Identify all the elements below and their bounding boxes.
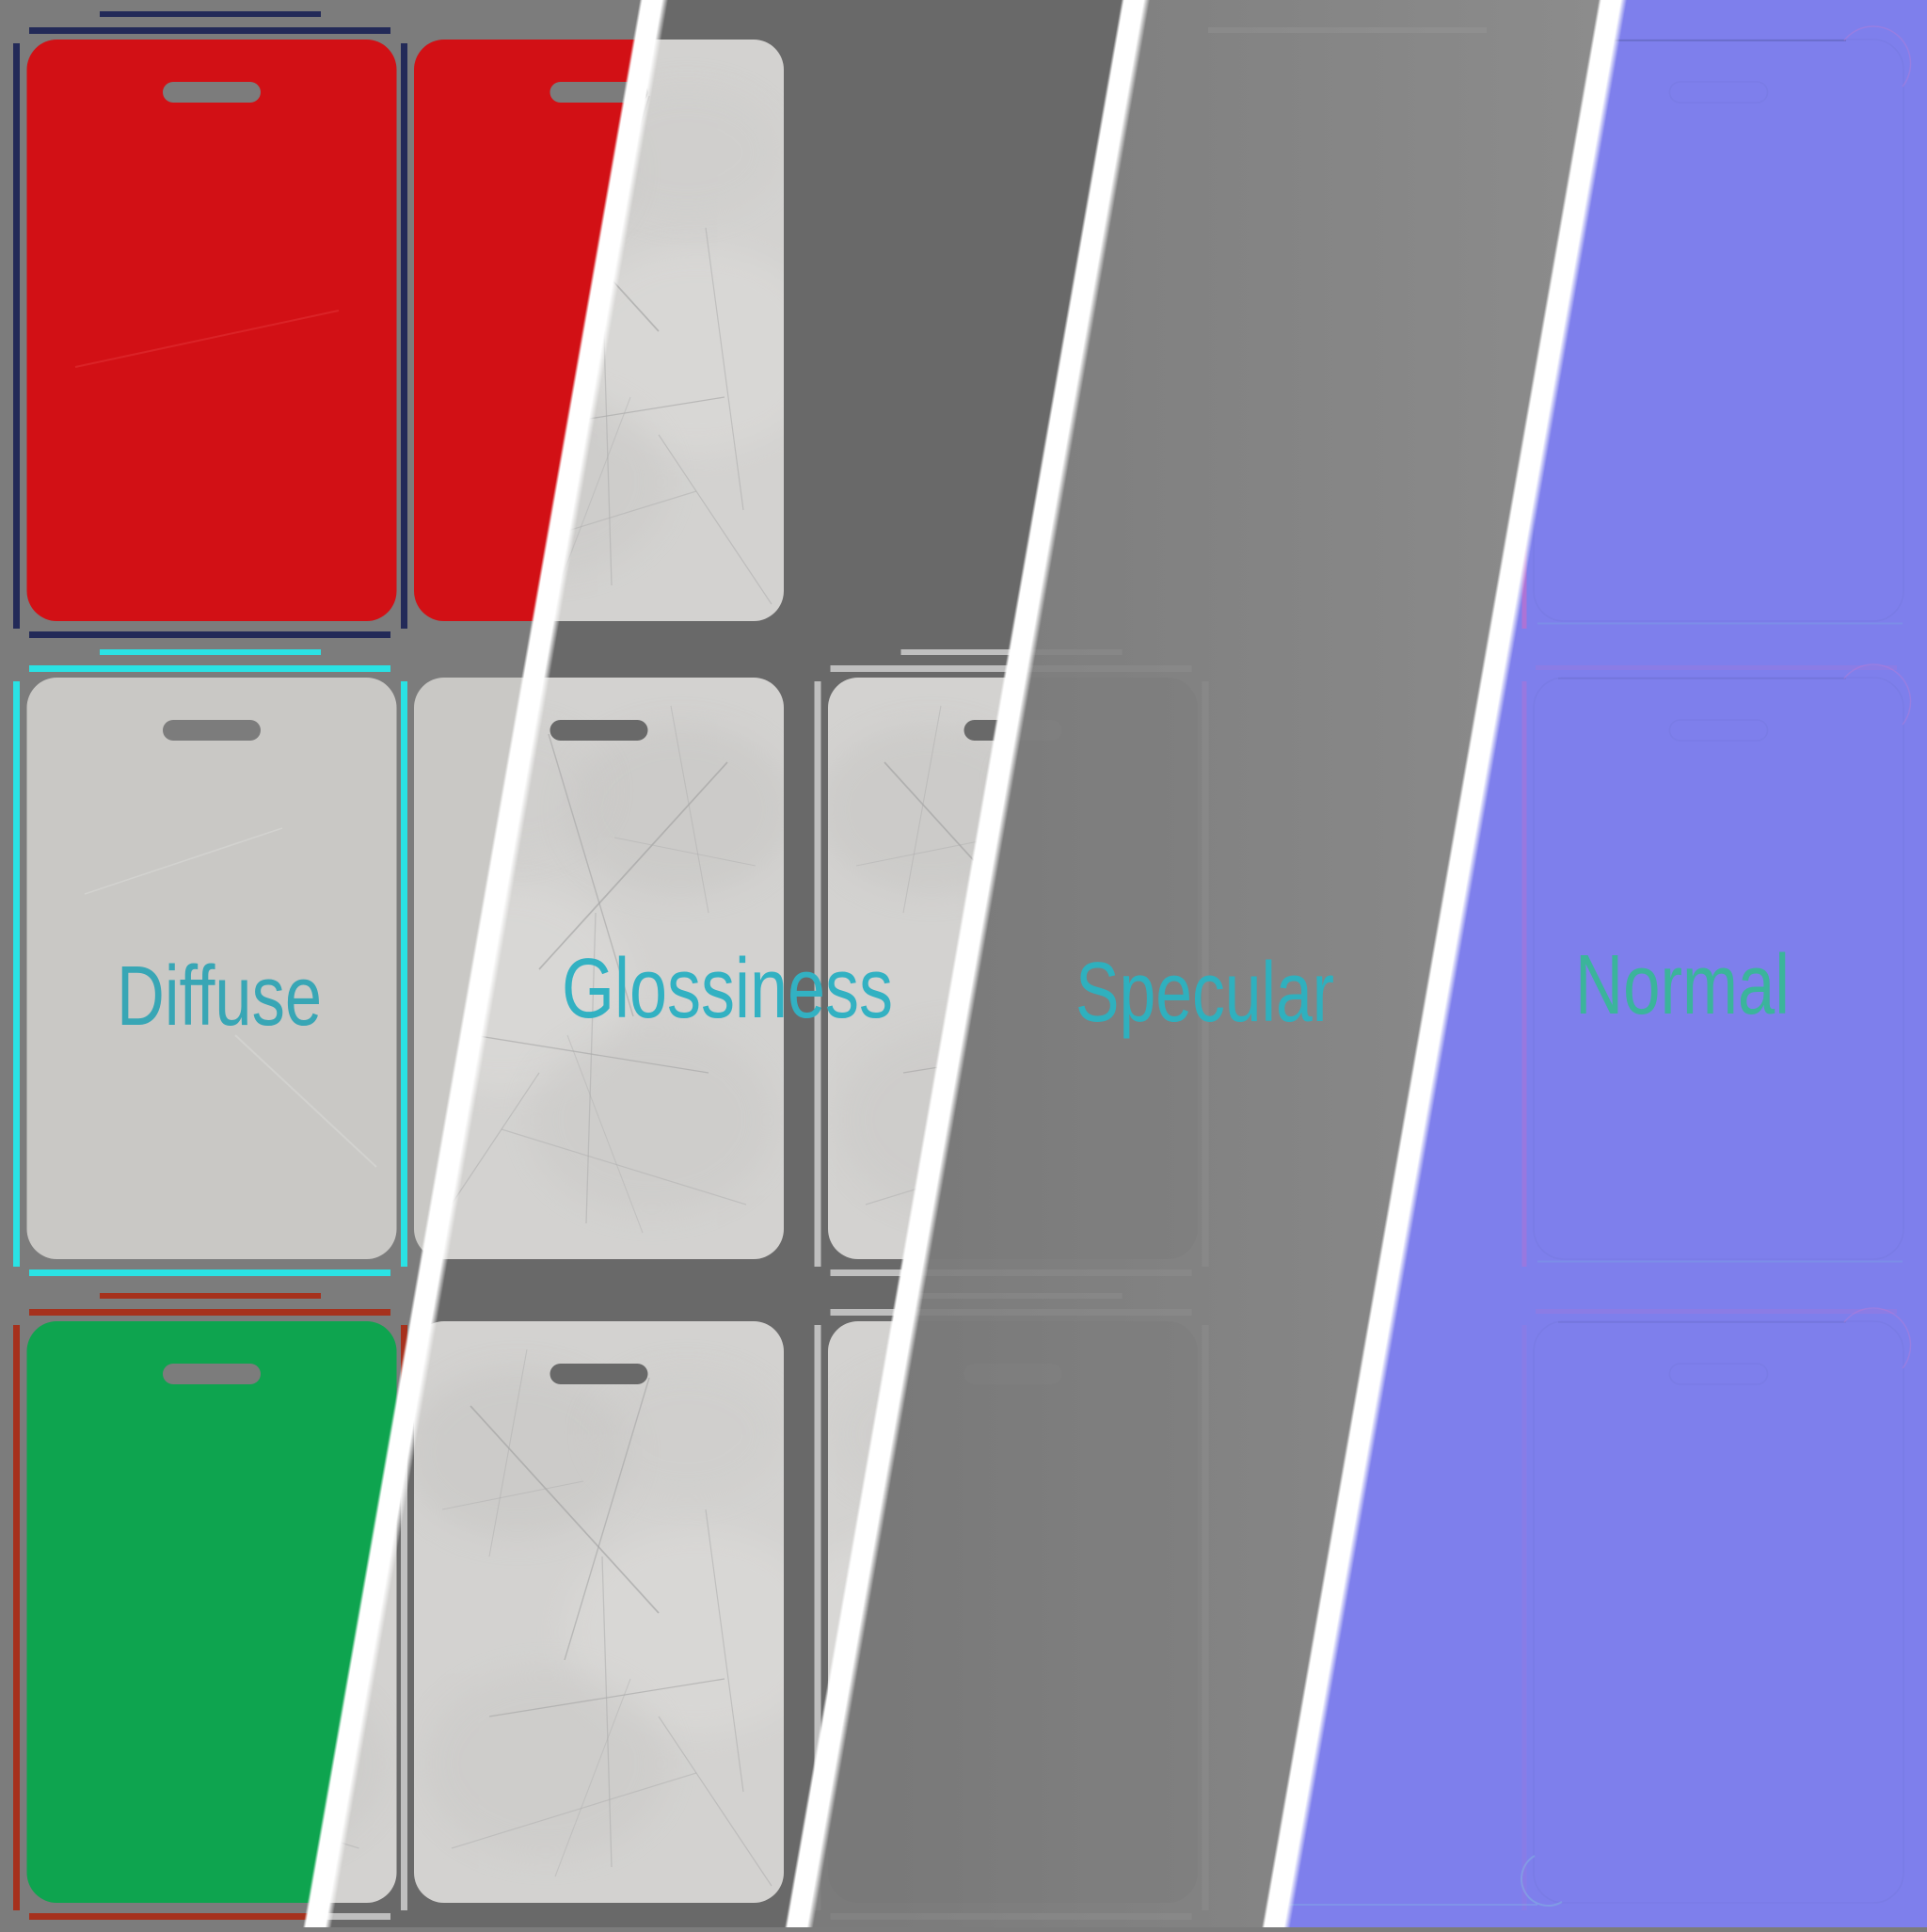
svg-text:Diffuse: Diffuse [117, 950, 322, 1044]
svg-text:Normal: Normal [1575, 938, 1790, 1032]
svg-text:Specular: Specular [1075, 946, 1334, 1040]
svg-text:Glossiness: Glossiness [562, 942, 893, 1036]
